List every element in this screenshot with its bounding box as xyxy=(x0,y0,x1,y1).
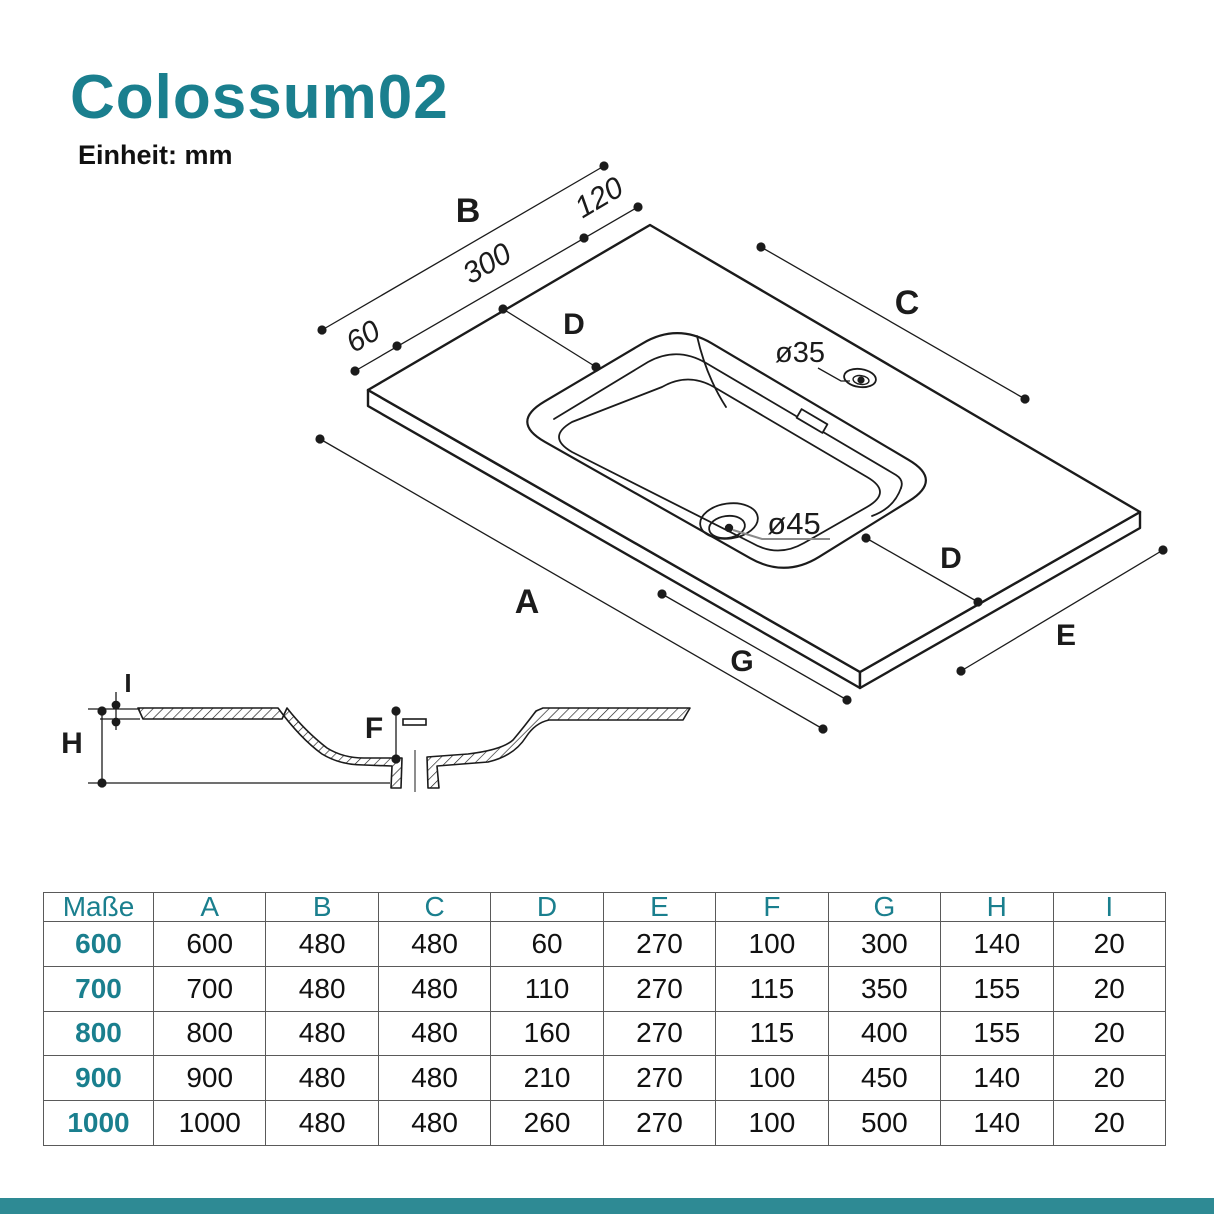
table-cell: 140 xyxy=(941,1056,1053,1101)
dim-label-120: 120 xyxy=(569,171,629,225)
table-header-cell: G xyxy=(828,893,940,922)
table-header-cell: F xyxy=(716,893,828,922)
table-row: 700 700 480 480 110 270 115 350 155 20 xyxy=(44,966,1166,1011)
table-cell: 480 xyxy=(378,1011,490,1056)
table-cell: 140 xyxy=(941,1101,1053,1146)
section-overflow-slot xyxy=(403,719,426,725)
table-cell: 20 xyxy=(1053,922,1166,967)
table-cell: 480 xyxy=(378,922,490,967)
callout-drain-diameter: ø45 xyxy=(733,506,830,541)
size-cell: 800 xyxy=(44,1011,154,1056)
footer-accent-bar xyxy=(0,1198,1214,1214)
table-cell: 270 xyxy=(603,1011,715,1056)
unit-label: Einheit: mm xyxy=(78,140,233,171)
table-cell: 140 xyxy=(941,922,1053,967)
table-cell: 480 xyxy=(266,1056,378,1101)
dim-label-G: G xyxy=(730,645,753,678)
callout-faucet-diameter: ø35 xyxy=(775,337,850,381)
table-cell: 480 xyxy=(266,1101,378,1146)
table-header-cell: C xyxy=(378,893,490,922)
slab-front-left-face xyxy=(368,390,860,688)
table-cell: 160 xyxy=(491,1011,603,1056)
table-header-cell: B xyxy=(266,893,378,922)
section-left-body xyxy=(138,708,402,788)
dim-label-E: E xyxy=(1056,619,1076,652)
table-header-cell: Maße xyxy=(44,893,154,922)
table-cell: 100 xyxy=(716,922,828,967)
dim-label-300: 300 xyxy=(457,237,517,291)
table-row: 800 800 480 480 160 270 115 400 155 20 xyxy=(44,1011,1166,1056)
basin-inner-ledge xyxy=(554,354,902,488)
dim-line-A: A xyxy=(315,434,827,733)
table-cell: 100 xyxy=(716,1056,828,1101)
table-cell: 480 xyxy=(378,966,490,1011)
dim-label-H: H xyxy=(61,727,83,760)
table-row: 600 600 480 480 60 270 100 300 140 20 xyxy=(44,922,1166,967)
dimension-lines: B 60 300 120 D xyxy=(315,161,1167,733)
slab-front-right-face xyxy=(860,512,1140,688)
table-row: 900 900 480 480 210 270 100 450 140 20 xyxy=(44,1056,1166,1101)
drain-hole xyxy=(698,500,760,543)
table-cell: 1000 xyxy=(154,1101,266,1146)
table-cell: 260 xyxy=(491,1101,603,1146)
table-cell: 270 xyxy=(603,966,715,1011)
table-cell: 155 xyxy=(941,1011,1053,1056)
basin-opening xyxy=(527,333,926,568)
dim-label-F: F xyxy=(365,712,383,745)
dim-line-I: I xyxy=(112,668,132,730)
table-cell: 700 xyxy=(154,966,266,1011)
table-cell: 480 xyxy=(266,966,378,1011)
size-cell: 1000 xyxy=(44,1101,154,1146)
dim-label-B: B xyxy=(456,192,481,230)
table-cell: 500 xyxy=(828,1101,940,1146)
page-title: Colossum02 xyxy=(70,62,449,133)
dim-line-60-300-120: 60 300 120 xyxy=(340,171,642,376)
dim-label-D-front: D xyxy=(940,542,962,575)
dim-label-60: 60 xyxy=(340,314,386,360)
table-cell: 20 xyxy=(1053,966,1166,1011)
size-cell: 900 xyxy=(44,1056,154,1101)
dim-line-G: G xyxy=(657,589,851,704)
table-cell: 270 xyxy=(603,1056,715,1101)
table-header-cell: D xyxy=(491,893,603,922)
dim-line-E: E xyxy=(956,545,1167,675)
dim-label-I: I xyxy=(124,668,131,698)
table-cell: 20 xyxy=(1053,1056,1166,1101)
table-cell: 480 xyxy=(378,1056,490,1101)
table-cell: 60 xyxy=(491,922,603,967)
table-cell: 20 xyxy=(1053,1101,1166,1146)
table-cell: 480 xyxy=(378,1101,490,1146)
table-header-cell: I xyxy=(1053,893,1166,922)
size-cell: 700 xyxy=(44,966,154,1011)
section-right-body xyxy=(427,708,690,788)
table-cell: 350 xyxy=(828,966,940,1011)
table-cell: 480 xyxy=(266,922,378,967)
dim-line-F: F xyxy=(365,706,401,763)
table-cell: 115 xyxy=(716,966,828,1011)
table-cell: 100 xyxy=(716,1101,828,1146)
dim-label-d45: ø45 xyxy=(767,506,820,541)
table-cell: 450 xyxy=(828,1056,940,1101)
table-cell: 270 xyxy=(603,922,715,967)
dim-line-D-front: D xyxy=(861,533,982,606)
table-row: 1000 1000 480 480 260 270 100 500 140 20 xyxy=(44,1101,1166,1146)
washbasin-isometric-view xyxy=(368,225,1140,688)
table-header-cell: H xyxy=(941,893,1053,922)
dim-label-D-left: D xyxy=(563,308,585,341)
table-cell: 400 xyxy=(828,1011,940,1056)
table-header-cell: A xyxy=(154,893,266,922)
dimensions-table: Maße A B C D E F G H I 600 600 480 480 6… xyxy=(43,892,1166,1146)
table-header-cell: E xyxy=(603,893,715,922)
table-cell: 115 xyxy=(716,1011,828,1056)
dim-label-A: A xyxy=(515,583,540,621)
table-cell: 600 xyxy=(154,922,266,967)
basin-wall-curve-right xyxy=(872,488,901,516)
dim-line-C: C xyxy=(756,242,1029,403)
slab-top-face xyxy=(368,225,1140,672)
overflow-slot xyxy=(797,409,828,433)
page: Colossum02 Einheit: mm xyxy=(0,0,1214,1214)
basin-wall-curve-top xyxy=(697,336,726,407)
table-cell: 210 xyxy=(491,1056,603,1101)
dim-line-D-left: D xyxy=(498,304,600,371)
cross-section-view: I H F xyxy=(61,668,690,792)
dim-line-H: H xyxy=(61,706,106,787)
table-cell: 110 xyxy=(491,966,603,1011)
table-cell: 155 xyxy=(941,966,1053,1011)
size-cell: 600 xyxy=(44,922,154,967)
dim-label-d35: ø35 xyxy=(775,337,825,369)
table-cell: 900 xyxy=(154,1056,266,1101)
table-cell: 300 xyxy=(828,922,940,967)
table-cell: 800 xyxy=(154,1011,266,1056)
faucet-hole xyxy=(843,367,877,389)
dim-label-C: C xyxy=(895,284,920,322)
table-header-row: Maße A B C D E F G H I xyxy=(44,893,1166,922)
dim-line-B: B xyxy=(317,161,608,334)
basin-floor-outline xyxy=(559,380,880,551)
table-cell: 270 xyxy=(603,1101,715,1146)
table-cell: 480 xyxy=(266,1011,378,1056)
table-cell: 20 xyxy=(1053,1011,1166,1056)
